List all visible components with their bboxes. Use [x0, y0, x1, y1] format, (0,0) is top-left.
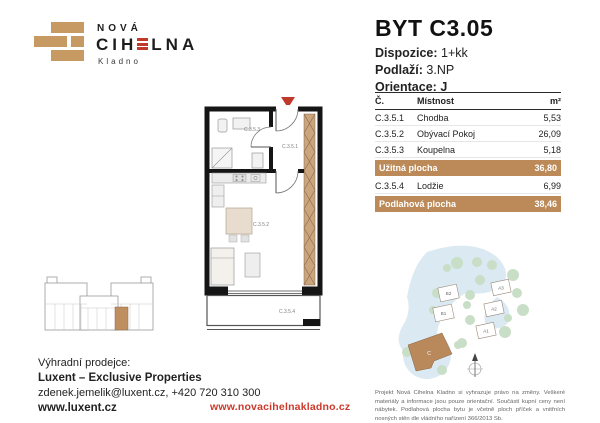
- unit-title: BYT C3.05: [375, 15, 493, 42]
- seller-name: Luxent – Exclusive Properties: [38, 371, 260, 386]
- toilet: [218, 119, 227, 132]
- bed: [211, 248, 234, 285]
- header-num: Č.: [375, 96, 417, 106]
- door-gap: [269, 127, 274, 147]
- label-lodzie: C.3.5.4: [279, 309, 295, 315]
- floor-area-label: Podlahová plocha: [379, 199, 517, 209]
- middle-section: [80, 296, 118, 330]
- row-area: 26,09: [521, 129, 561, 139]
- podlazi-value: 3.NP: [426, 63, 454, 77]
- row-area: 5,53: [521, 113, 561, 123]
- header-area: m²: [521, 96, 561, 106]
- building-label-a2: A2: [491, 307, 497, 312]
- building-label-a3: A3: [498, 286, 504, 291]
- row-room: Lodžie: [417, 181, 521, 191]
- chair: [229, 235, 237, 242]
- podlazi-label: Podlaží:: [375, 63, 423, 77]
- burner: [236, 176, 238, 178]
- row-num: C.3.5.3: [375, 145, 417, 155]
- brand-name-left: CIH: [96, 35, 137, 54]
- brand-logo: NOVÁ CIHLNA Kladno: [34, 20, 234, 72]
- row-room: Koupelna: [417, 145, 521, 155]
- row-num: C.3.5.1: [375, 113, 417, 123]
- brand-name-top: NOVÁ: [97, 23, 142, 34]
- wall-block: [205, 287, 228, 296]
- table-row: C.3.5.2 Obývací Pokoj 26,09: [375, 126, 561, 142]
- unit-podlazi: Podlaží: 3.NP: [375, 62, 468, 79]
- wall-block: [302, 287, 320, 296]
- legal-disclaimer: Projekt Nová Cihelna Kladno si vyhrazuje…: [375, 389, 565, 423]
- building-label-b2: B2: [446, 291, 452, 296]
- unit-highlight: [115, 307, 128, 330]
- row-room: Chodba: [417, 113, 521, 123]
- usable-area-value: 36,80: [517, 163, 557, 173]
- floor-locator-plan: [25, 258, 180, 353]
- label-obyvaci: C.3.5.2: [253, 222, 269, 228]
- red-e-icon: [137, 38, 148, 50]
- row-room: Obývací Pokoj: [417, 129, 521, 139]
- kitchen-island: [226, 208, 252, 234]
- kitchen-sink: [251, 175, 260, 182]
- stove: [233, 175, 246, 182]
- building-label-c: C: [427, 351, 431, 357]
- chair: [241, 235, 249, 242]
- unit-dispozice: Dispozice: 1+kk: [375, 45, 468, 62]
- row-area: 6,99: [521, 181, 561, 191]
- table-header: Č. Místnost m²: [375, 92, 561, 110]
- seller-contact[interactable]: zdenek.jemelik@luxent.cz, +420 720 310 3…: [38, 386, 260, 401]
- project-website-link[interactable]: www.novacihelnakladno.cz: [210, 401, 350, 413]
- usable-area-row: Užitná plocha 36,80: [375, 160, 561, 176]
- burner: [236, 179, 238, 181]
- floor-plan: C.3.5.1 C.3.5.3 C.3.5.2 C.3.5.4: [193, 90, 368, 345]
- header-room: Místnost: [417, 96, 521, 106]
- brick-icon: [51, 22, 84, 33]
- door-gap: [276, 105, 298, 113]
- brick-icon: [71, 36, 84, 47]
- unit-info: Dispozice: 1+kk Podlaží: 3.NP Orientace:…: [375, 45, 468, 96]
- apartment-fact-sheet: NOVÁ CIHLNA Kladno BYT C3.05 Dispozice: …: [0, 0, 600, 423]
- row-area: 5,18: [521, 145, 561, 155]
- compass-icon: [467, 353, 483, 377]
- brick-icon: [34, 36, 67, 47]
- brand-name-sub: Kladno: [98, 57, 141, 66]
- burner: [242, 179, 244, 181]
- row-num: C.3.5.4: [375, 181, 417, 191]
- side-table: [245, 253, 260, 277]
- usable-area-label: Užitná plocha: [379, 163, 517, 173]
- dispozice-value: 1+kk: [441, 46, 468, 60]
- building-label-b1: B1: [441, 311, 447, 316]
- table-row: C.3.5.3 Koupelna 5,18: [375, 142, 561, 158]
- floor-area-value: 38,46: [517, 199, 557, 209]
- sink: [252, 153, 263, 168]
- dispozice-label: Dispozice:: [375, 46, 438, 60]
- seller-label: Výhradní prodejce:: [38, 356, 260, 371]
- wall-block: [303, 319, 320, 326]
- building-label-a1: A1: [483, 329, 489, 334]
- burner: [242, 176, 244, 178]
- table-row: C.3.5.1 Chodba 5,53: [375, 110, 561, 126]
- row-num: C.3.5.2: [375, 129, 417, 139]
- site-plan: B2 B1 A3 A2 A1 C: [372, 237, 567, 385]
- table-row: C.3.5.4 Lodžie 6,99: [375, 178, 561, 194]
- room-table: Č. Místnost m² C.3.5.1 Chodba 5,53 C.3.5…: [375, 92, 561, 214]
- brand-name-main: CIHLNA: [96, 35, 198, 55]
- label-koupelna: C.3.5.3: [244, 127, 260, 133]
- brand-name-right: LNA: [151, 35, 198, 54]
- floor-area-row: Podlahová plocha 38,46: [375, 196, 561, 212]
- brick-icon: [51, 50, 84, 61]
- label-chodba: C.3.5.1: [282, 144, 298, 150]
